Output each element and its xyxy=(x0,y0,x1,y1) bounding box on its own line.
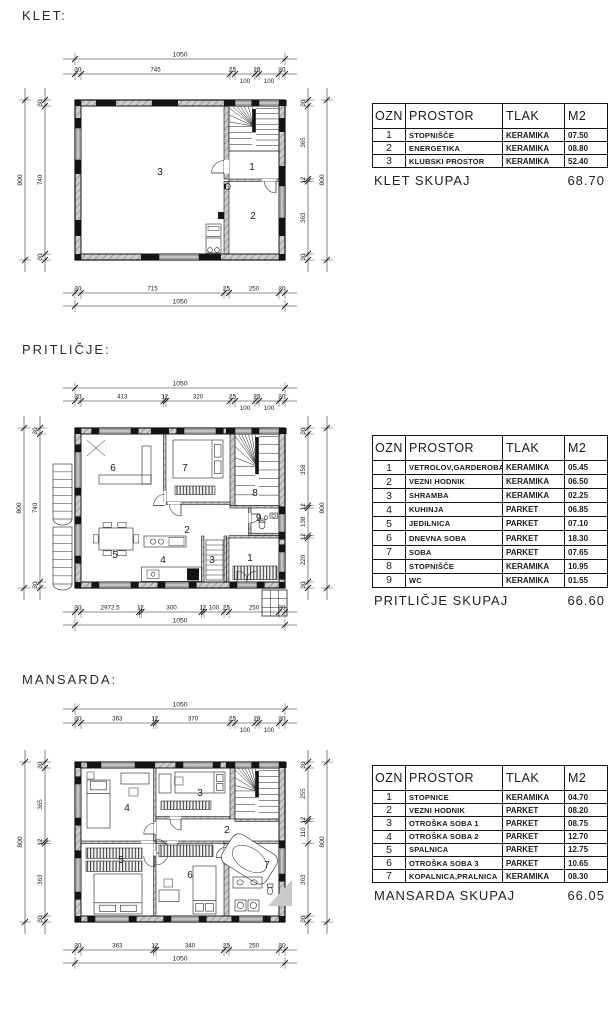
dim-label: 30 xyxy=(300,427,307,434)
column-header-ozn: OZN xyxy=(373,766,406,791)
dim-label: 250 xyxy=(249,605,260,612)
dim-label: 30 xyxy=(37,253,44,260)
table-row: 1STOPNIŠČEKERAMIKA07.50 xyxy=(373,129,608,142)
dim-label: 1050 xyxy=(172,381,187,388)
area-m2: 07.50 xyxy=(565,129,608,142)
dim-label: 255 xyxy=(300,788,307,799)
dim-label: 25 xyxy=(229,67,236,74)
dim-label: 30 xyxy=(300,581,307,588)
area-m2: 04.70 xyxy=(565,791,608,804)
klet-area-table: OZNPROSTORTLAKM21STOPNIŠČEKERAMIKA07.502… xyxy=(372,103,607,188)
room-name: STOPNIŠČE xyxy=(406,129,503,142)
table-row: 3OTROŠKA SOBA 1PARKET08.75 xyxy=(373,817,608,830)
dim-label: 740 xyxy=(32,502,39,513)
area-m2: 02.25 xyxy=(565,489,608,503)
floor-finish: KERAMIKA xyxy=(503,870,565,883)
column-header-tlak: TLAK xyxy=(503,766,565,791)
dim-label: 300 xyxy=(166,605,177,612)
table-row: 1STOPNICEKERAMIKA04.70 xyxy=(373,791,608,804)
room-label-9: 9 xyxy=(256,513,262,524)
floor-finish: KERAMIKA xyxy=(503,573,565,587)
table-row: 2VEZNI HODNIKPARKET08.20 xyxy=(373,804,608,817)
floor-finish: PARKET xyxy=(503,545,565,559)
area-m2: 12.70 xyxy=(565,830,608,843)
room-number: 4 xyxy=(373,830,406,843)
floor-finish: PARKET xyxy=(503,531,565,545)
dim-label: 2972.5 xyxy=(101,605,120,612)
area-m2: 12.75 xyxy=(565,843,608,856)
room-number: 3 xyxy=(373,155,406,168)
dim-label: 12 xyxy=(37,838,44,845)
dim-label: 12 xyxy=(300,503,307,510)
room-number: 4 xyxy=(373,503,406,517)
room-number: 1 xyxy=(373,791,406,804)
area-m2: 05.45 xyxy=(565,461,608,475)
floor-finish: KERAMIKA xyxy=(503,461,565,475)
room-number: 3 xyxy=(373,817,406,830)
area-m2: 07.65 xyxy=(565,545,608,559)
table-row: 9WCKERAMIKA01.55 xyxy=(373,573,608,587)
floor-finish: PARKET xyxy=(503,856,565,869)
area-m2: 06.85 xyxy=(565,503,608,517)
room-label-3: 3 xyxy=(209,555,215,566)
dim-label: 20 xyxy=(254,394,261,401)
room-label-2: 2 xyxy=(250,211,256,222)
room-name: OTROŠKA SOBA 3 xyxy=(406,856,503,869)
dim-label: 745 xyxy=(150,67,161,74)
dim-label: 25 xyxy=(223,286,230,293)
room-name: SOBA xyxy=(406,545,503,559)
floor-finish: KERAMIKA xyxy=(503,489,565,503)
floor-total-value: 66.60 xyxy=(567,593,605,608)
dim-label: 363 xyxy=(37,874,44,885)
column-header-m2: M2 xyxy=(565,766,608,791)
table-row: 3SHRAMBAKERAMIKA02.25 xyxy=(373,489,608,503)
dim-label: 100 xyxy=(209,605,220,612)
room-number: 2 xyxy=(373,475,406,489)
room-number: 5 xyxy=(373,843,406,856)
area-m2: 08.20 xyxy=(565,804,608,817)
dim-label: 30 xyxy=(37,761,44,768)
table-row: 3KLUBSKI PROSTORKERAMIKA52.40 xyxy=(373,155,608,168)
mansarda-area-table: OZNPROSTORTLAKM21STOPNICEKERAMIKA04.702V… xyxy=(372,765,607,903)
room-name: STOPNIŠČE xyxy=(406,559,503,573)
dim-label: 100 xyxy=(264,78,275,85)
column-header-m2: M2 xyxy=(565,104,608,129)
dim-label: 12 xyxy=(300,176,307,183)
floor-total-label: MANSARDA SKUPAJ xyxy=(374,888,515,903)
dim-label: 340 xyxy=(185,943,196,950)
floor-finish: KERAMIKA xyxy=(503,155,565,168)
room-number: 1 xyxy=(373,461,406,475)
area-m2: 18.30 xyxy=(565,531,608,545)
column-header-prostor: PROSTOR xyxy=(406,436,503,461)
area-m2: 07.10 xyxy=(565,517,608,531)
room-name: KLUBSKI PROSTOR xyxy=(406,155,503,168)
klet-floor-plan: 3121050307452510020100303071525250301050… xyxy=(17,52,333,313)
dim-label: 30 xyxy=(37,99,44,106)
dim-label: 20 xyxy=(254,67,261,74)
room-label-6: 6 xyxy=(187,870,193,881)
dim-label: 30 xyxy=(300,99,307,106)
dim-label: 100 xyxy=(264,727,275,734)
dim-label: 30 xyxy=(32,427,39,434)
room-label-8: 8 xyxy=(252,488,258,499)
dim-label: 110 xyxy=(300,827,307,837)
dim-label: 25 xyxy=(223,605,230,612)
floor-finish: PARKET xyxy=(503,843,565,856)
floor-finish: PARKET xyxy=(503,830,565,843)
table-row: 7SOBAPARKET07.65 xyxy=(373,545,608,559)
dim-label: 363 xyxy=(300,212,307,223)
room-name: OTROŠKA SOBA 1 xyxy=(406,817,503,830)
table-row: 4KUHINJAPARKET06.85 xyxy=(373,503,608,517)
dim-label: 800 xyxy=(16,502,23,514)
room-label-1: 1 xyxy=(247,553,253,564)
dim-label: 220 xyxy=(300,554,307,565)
dim-label: 250 xyxy=(249,943,260,950)
table-row: 4OTROŠKA SOBA 2PARKET12.70 xyxy=(373,830,608,843)
dim-label: 25 xyxy=(229,716,236,723)
floor-finish: KERAMIKA xyxy=(503,129,565,142)
area-m2: 01.55 xyxy=(565,573,608,587)
room-number: 7 xyxy=(373,545,406,559)
column-header-ozn: OZN xyxy=(373,104,406,129)
floor-total-label: PRITLIČJE SKUPAJ xyxy=(374,593,508,608)
dim-label: 363 xyxy=(112,943,123,950)
dim-label: 1050 xyxy=(172,52,187,59)
column-header-prostor: PROSTOR xyxy=(406,766,503,791)
room-number: 2 xyxy=(373,142,406,155)
room-name: WC xyxy=(406,573,503,587)
room-label-1: 1 xyxy=(249,162,255,173)
room-label-3: 3 xyxy=(157,167,163,178)
area-m2: 52.40 xyxy=(565,155,608,168)
table-row: 5JEDILNICAPARKET07.10 xyxy=(373,517,608,531)
room-name: SHRAMBA xyxy=(406,489,503,503)
room-label-2: 2 xyxy=(224,825,230,836)
column-header-tlak: TLAK xyxy=(503,436,565,461)
dim-label: 800 xyxy=(319,174,326,186)
column-header-tlak: TLAK xyxy=(503,104,565,129)
floor-total-value: 68.70 xyxy=(567,173,605,188)
room-name: VEZNI HODNIK xyxy=(406,804,503,817)
dim-label: 138 xyxy=(300,516,307,527)
dim-label: 740 xyxy=(37,174,44,185)
room-name: JEDILNICA xyxy=(406,517,503,531)
floor-finish: KERAMIKA xyxy=(503,791,565,804)
dim-label: 1050 xyxy=(172,299,187,306)
dim-label: 30 xyxy=(300,253,307,260)
dim-label: 365 xyxy=(37,799,44,810)
floor-finish: PARKET xyxy=(503,517,565,531)
area-m2: 06.50 xyxy=(565,475,608,489)
room-label-4: 4 xyxy=(160,555,166,566)
area-m2: 10.65 xyxy=(565,856,608,869)
dim-label: 363 xyxy=(112,716,123,723)
column-header-m2: M2 xyxy=(565,436,608,461)
dim-label: 715 xyxy=(147,286,158,293)
room-name: OTROŠKA SOBA 2 xyxy=(406,830,503,843)
dim-label: 800 xyxy=(319,502,326,514)
room-number: 6 xyxy=(373,531,406,545)
dim-label: 30 xyxy=(32,581,39,588)
floor-finish: PARKET xyxy=(503,817,565,830)
dim-label: 100 xyxy=(240,405,251,412)
dim-label: 12 xyxy=(300,533,307,540)
table-row: 6OTROŠKA SOBA 3PARKET10.65 xyxy=(373,856,608,869)
room-label-4: 4 xyxy=(124,803,130,814)
room-number: 8 xyxy=(373,559,406,573)
dim-label: 363 xyxy=(300,874,307,885)
room-number: 5 xyxy=(373,517,406,531)
dim-label: 25 xyxy=(229,394,236,401)
room-label-6: 6 xyxy=(110,463,116,474)
floor-finish: KERAMIKA xyxy=(503,559,565,573)
dim-label: 358 xyxy=(300,464,307,475)
pritlicje-floor-plan: 6782543191050304131232025100201003030297… xyxy=(16,381,333,632)
dim-label: 30 xyxy=(37,915,44,922)
dim-label: 800 xyxy=(17,174,24,186)
room-number: 2 xyxy=(373,804,406,817)
dim-label: 413 xyxy=(117,394,128,401)
room-name: ENERGETIKA xyxy=(406,142,503,155)
room-label-2: 2 xyxy=(184,525,190,536)
table-row: 2VEZNI HODNIKKERAMIKA06.50 xyxy=(373,475,608,489)
table-row: 5SPALNICAPARKET12.75 xyxy=(373,843,608,856)
room-number: 3 xyxy=(373,489,406,503)
table-row: 8STOPNIŠČEKERAMIKA10.95 xyxy=(373,559,608,573)
dim-label: 800 xyxy=(17,836,24,848)
room-number: 7 xyxy=(373,870,406,883)
room-name: SPALNICA xyxy=(406,843,503,856)
column-header-prostor: PROSTOR xyxy=(406,104,503,129)
dim-label: 1050 xyxy=(172,702,187,709)
floor-finish: PARKET xyxy=(503,804,565,817)
room-label-7: 7 xyxy=(182,463,188,474)
room-name: KUHINJA xyxy=(406,503,503,517)
table-row: 1VETROLOV,GARDEROBAKERAMIKA05.45 xyxy=(373,461,608,475)
floor-finish: PARKET xyxy=(503,503,565,517)
room-number: 1 xyxy=(373,129,406,142)
table-row: 6DNEVNA SOBAPARKET18.30 xyxy=(373,531,608,545)
floor-total-value: 66.05 xyxy=(567,888,605,903)
floor-total-label: KLET SKUPAJ xyxy=(374,173,471,188)
room-label-3: 3 xyxy=(197,788,203,799)
mansarda-floor-plan: 4325671050303631237025100201003030363123… xyxy=(17,702,333,970)
column-header-ozn: OZN xyxy=(373,436,406,461)
dim-label: 100 xyxy=(240,78,251,85)
room-name: DNEVNA SOBA xyxy=(406,531,503,545)
room-name: VEZNI HODNIK xyxy=(406,475,503,489)
dim-label: 365 xyxy=(300,137,307,148)
dim-label: 100 xyxy=(264,405,275,412)
room-label-5: 5 xyxy=(118,855,124,866)
pritlicje-area-table: OZNPROSTORTLAKM21VETROLOV,GARDEROBAKERAM… xyxy=(372,435,607,608)
dim-label: 800 xyxy=(319,836,326,848)
floor-plan-sheet: KLET: PRITLIČJE: MANSARDA: 3121050307452… xyxy=(0,0,615,1024)
dim-label: 20 xyxy=(254,716,261,723)
dim-label: 100 xyxy=(240,727,251,734)
room-name: KOPALNICA,PRALNICA xyxy=(406,870,503,883)
dim-label: 250 xyxy=(249,286,260,293)
dim-label: 30 xyxy=(300,761,307,768)
dim-label: 1050 xyxy=(172,618,187,625)
dim-label: 25 xyxy=(223,943,230,950)
room-number: 9 xyxy=(373,573,406,587)
area-m2: 10.95 xyxy=(565,559,608,573)
room-label-7: 7 xyxy=(264,860,270,871)
dim-label: 370 xyxy=(188,716,199,723)
floor-finish: KERAMIKA xyxy=(503,475,565,489)
area-m2: 08.75 xyxy=(565,817,608,830)
dim-label: 1050 xyxy=(172,956,187,963)
room-name: VETROLOV,GARDEROBA xyxy=(406,461,503,475)
room-name: STOPNICE xyxy=(406,791,503,804)
table-row: 2ENERGETIKAKERAMIKA08.80 xyxy=(373,142,608,155)
floor-finish: KERAMIKA xyxy=(503,142,565,155)
room-label-5: 5 xyxy=(112,550,118,561)
table-row: 7KOPALNICA,PRALNICAKERAMIKA08.30 xyxy=(373,870,608,883)
dim-label: 320 xyxy=(193,394,204,401)
dim-label: 30 xyxy=(300,915,307,922)
dim-label: 12 xyxy=(300,816,307,823)
area-m2: 08.30 xyxy=(565,870,608,883)
area-m2: 08.80 xyxy=(565,142,608,155)
room-number: 6 xyxy=(373,856,406,869)
